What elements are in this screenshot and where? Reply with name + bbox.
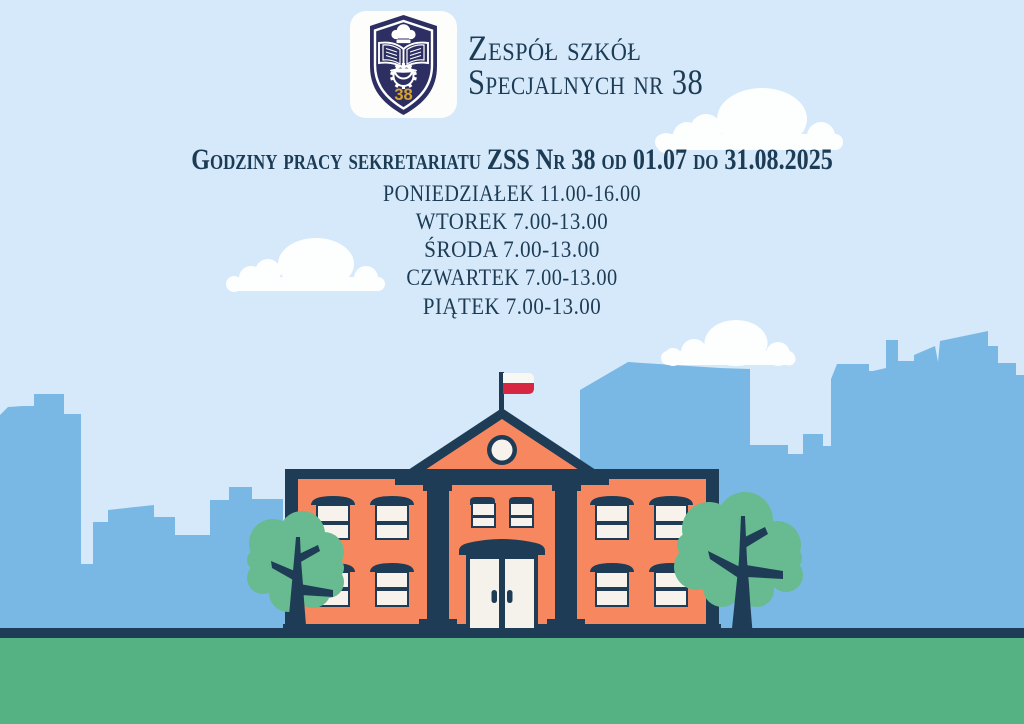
svg-text:38: 38 [394, 86, 412, 104]
